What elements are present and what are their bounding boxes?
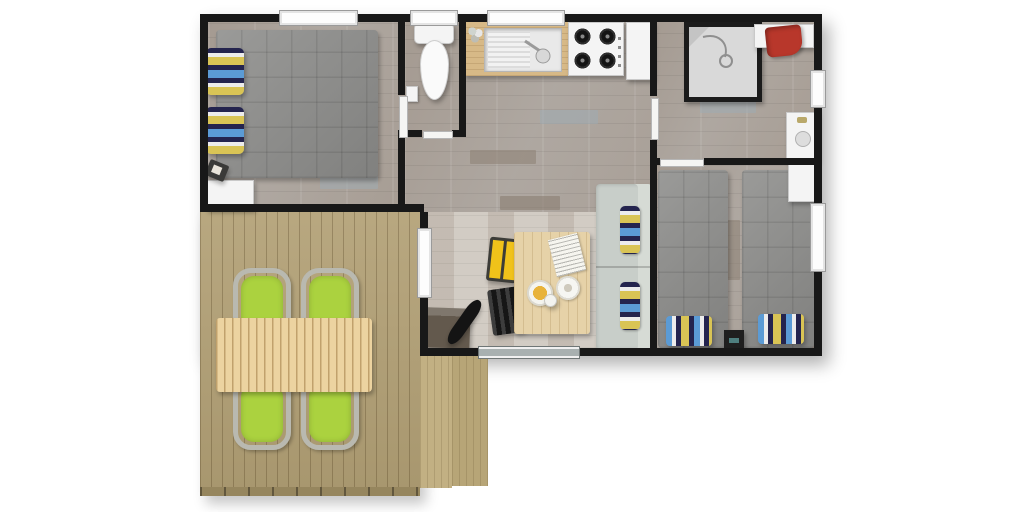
faucet-icon bbox=[485, 29, 561, 71]
wall bbox=[453, 14, 490, 22]
sofa-seam bbox=[596, 266, 652, 268]
chair-cushion bbox=[309, 384, 351, 442]
burner-icon bbox=[599, 28, 616, 45]
white-plate bbox=[556, 276, 580, 300]
deck-step-1 bbox=[420, 356, 452, 488]
nightstand bbox=[724, 330, 744, 350]
striped-pillow bbox=[758, 314, 804, 344]
door-wc bbox=[423, 131, 453, 139]
basin-taps bbox=[797, 117, 807, 123]
window bbox=[487, 10, 565, 26]
deck-step-2 bbox=[452, 356, 488, 486]
floor-plan-canvas bbox=[0, 0, 1024, 512]
flower-pot bbox=[466, 25, 484, 43]
wall bbox=[200, 14, 282, 22]
sliding-glass-door bbox=[478, 346, 580, 359]
wall bbox=[578, 348, 822, 356]
gas-hob bbox=[568, 22, 624, 76]
picnic-table bbox=[216, 318, 372, 392]
floor-accent bbox=[470, 150, 536, 164]
wall bbox=[452, 130, 466, 137]
window bbox=[810, 203, 826, 272]
window bbox=[279, 10, 358, 26]
shower-cabin bbox=[684, 22, 762, 102]
chair-slat bbox=[489, 240, 504, 279]
striped-pillow bbox=[666, 316, 712, 346]
wall bbox=[200, 14, 208, 212]
striped-pillow bbox=[206, 107, 244, 154]
striped-pillow bbox=[206, 48, 244, 95]
window bbox=[410, 10, 458, 26]
wall bbox=[650, 158, 660, 165]
wall bbox=[200, 204, 424, 212]
sofa-cushion bbox=[620, 206, 640, 254]
wall bbox=[650, 22, 657, 96]
floor-accent bbox=[540, 110, 598, 124]
wall bbox=[459, 22, 466, 134]
wall bbox=[814, 268, 822, 356]
floor-accent bbox=[500, 196, 560, 210]
basin-bowl bbox=[795, 131, 811, 147]
chair-cushion bbox=[241, 384, 283, 442]
hob-knobs bbox=[618, 31, 621, 67]
wall bbox=[560, 14, 822, 22]
wall bbox=[398, 137, 405, 210]
door-twin-bedroom bbox=[660, 159, 704, 167]
bag-detail bbox=[211, 164, 222, 175]
wall bbox=[704, 158, 822, 165]
window bbox=[810, 70, 826, 108]
burner-icon bbox=[574, 28, 591, 45]
wall bbox=[353, 14, 413, 22]
wall bbox=[814, 104, 822, 205]
burner-icon bbox=[599, 52, 616, 69]
sofa-cushion bbox=[620, 282, 640, 330]
kitchen-sink bbox=[484, 28, 562, 72]
bedroom-cabinet bbox=[788, 164, 816, 202]
burner-icon bbox=[574, 52, 591, 69]
cup bbox=[544, 294, 557, 307]
wall bbox=[650, 140, 657, 356]
wall bbox=[420, 294, 428, 348]
door-shower-room bbox=[651, 98, 659, 140]
shower-head-icon bbox=[689, 27, 747, 87]
nightstand-detail bbox=[729, 338, 739, 343]
door-master-bedroom bbox=[399, 96, 408, 138]
wall bbox=[420, 348, 478, 356]
wall bbox=[398, 22, 405, 95]
wall bbox=[814, 14, 822, 72]
window bbox=[417, 228, 432, 298]
deck-fascia bbox=[200, 487, 420, 496]
